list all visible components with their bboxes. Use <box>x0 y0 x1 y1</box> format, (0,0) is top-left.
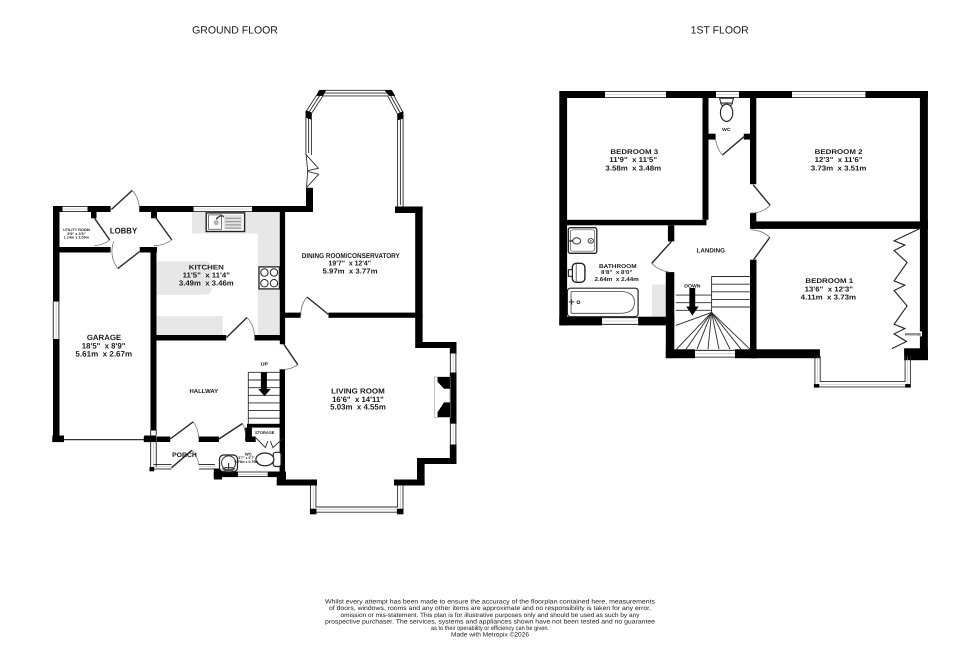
svg-text:LOBBY: LOBBY <box>110 226 138 236</box>
svg-text:STORAGE: STORAGE <box>255 430 275 435</box>
svg-text:WC: WC <box>722 127 731 132</box>
svg-text:LANDING: LANDING <box>697 248 726 255</box>
svg-text:2.64m x 2.44m: 2.64m x 2.44m <box>595 277 639 283</box>
svg-text:UP: UP <box>261 361 269 366</box>
svg-text:BEDROOM 3: BEDROOM 3 <box>610 149 658 156</box>
svg-text:DOWN: DOWN <box>684 283 701 289</box>
svg-text:3.73m x 3.51m: 3.73m x 3.51m <box>811 164 867 172</box>
svg-text:11'9" x 11'5": 11'9" x 11'5" <box>609 156 657 164</box>
svg-text:GROUND FLOOR: GROUND FLOOR <box>192 25 278 37</box>
svg-text:Made with Metropix ©2026: Made with Metropix ©2026 <box>451 632 530 639</box>
svg-text:5.97m x 3.77m: 5.97m x 3.77m <box>323 266 378 275</box>
svg-text:BEDROOM 2: BEDROOM 2 <box>815 149 863 156</box>
svg-text:3.58m x 3.48m: 3.58m x 3.48m <box>605 164 661 172</box>
svg-text:BEDROOM 1: BEDROOM 1 <box>805 278 853 285</box>
svg-text:PORCH: PORCH <box>172 452 197 459</box>
svg-text:12'3" x 11'6": 12'3" x 11'6" <box>815 156 863 164</box>
svg-text:1ST FLOOR: 1ST FLOOR <box>691 25 750 37</box>
svg-text:3.49m x 3.46m: 3.49m x 3.46m <box>179 279 234 288</box>
svg-text:5.03m x 4.55m: 5.03m x 4.55m <box>330 403 386 412</box>
svg-text:8'8" x 8'0": 8'8" x 8'0" <box>601 270 633 276</box>
svg-text:HALLWAY: HALLWAY <box>190 389 219 395</box>
svg-text:13'6" x 12'3": 13'6" x 12'3" <box>805 285 853 293</box>
svg-text:1.14m x 1.05m: 1.14m x 1.05m <box>64 236 89 240</box>
svg-text:BATHROOM: BATHROOM <box>599 264 637 270</box>
svg-text:WARDROBE: WARDROBE <box>905 333 922 337</box>
svg-text:5.61m x 2.67m: 5.61m x 2.67m <box>75 350 132 359</box>
svg-text:0.79m x 0.79m: 0.79m x 0.79m <box>235 460 259 464</box>
svg-text:4.11m x 3.73m: 4.11m x 3.73m <box>801 294 856 302</box>
